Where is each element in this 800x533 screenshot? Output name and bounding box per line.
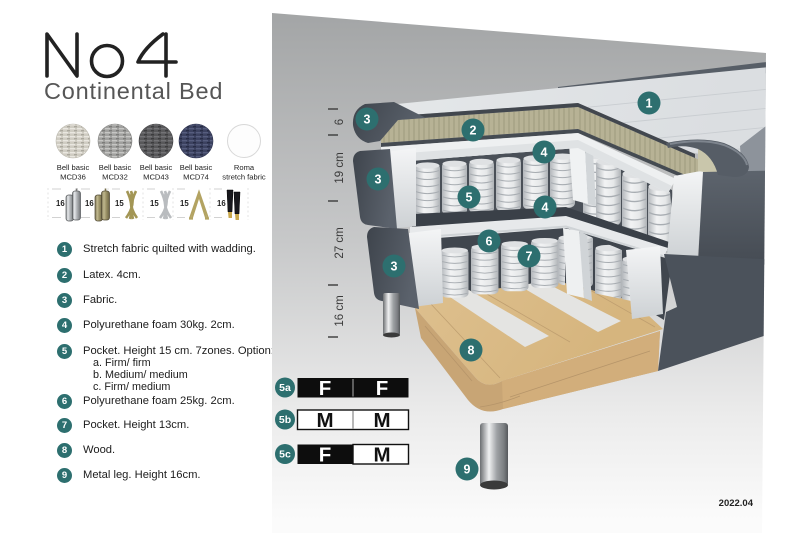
svg-text:15: 15	[115, 199, 124, 208]
svg-text:3: 3	[391, 260, 398, 274]
svg-text:27 cm: 27 cm	[334, 227, 346, 258]
svg-text:stretch fabric: stretch fabric	[222, 173, 266, 182]
svg-text:F: F	[319, 377, 332, 400]
svg-text:Bell basic: Bell basic	[57, 163, 90, 172]
svg-text:5c: 5c	[279, 449, 291, 461]
svg-text:5b: 5b	[279, 414, 291, 426]
svg-text:7: 7	[526, 250, 533, 264]
svg-text:F: F	[376, 377, 389, 400]
svg-text:5a: 5a	[279, 382, 291, 394]
svg-text:4: 4	[542, 201, 549, 215]
svg-text:Bell basic: Bell basic	[180, 163, 213, 172]
svg-text:16: 16	[85, 199, 94, 208]
svg-text:5: 5	[466, 191, 473, 205]
svg-text:Bell basic: Bell basic	[140, 163, 173, 172]
svg-text:Bell basic: Bell basic	[99, 163, 132, 172]
svg-text:M: M	[373, 444, 390, 467]
svg-text:MCD32: MCD32	[102, 173, 128, 182]
svg-text:Roma: Roma	[234, 163, 255, 172]
svg-text:15: 15	[180, 199, 189, 208]
svg-text:8: 8	[468, 344, 475, 358]
svg-text:6: 6	[486, 235, 493, 249]
svg-text:16: 16	[56, 199, 65, 208]
svg-text:4: 4	[541, 146, 548, 160]
svg-text:1: 1	[646, 97, 653, 111]
svg-text:15: 15	[150, 199, 159, 208]
svg-text:F: F	[319, 444, 332, 467]
svg-text:3: 3	[375, 173, 382, 187]
svg-text:6: 6	[334, 119, 346, 125]
svg-text:MCD36: MCD36	[60, 173, 86, 182]
svg-text:19 cm: 19 cm	[334, 152, 346, 183]
svg-text:3: 3	[364, 113, 371, 127]
svg-text:M: M	[373, 409, 390, 432]
svg-text:16: 16	[217, 199, 226, 208]
svg-text:16 cm: 16 cm	[334, 295, 346, 326]
svg-text:MCD74: MCD74	[183, 173, 209, 182]
svg-text:9: 9	[464, 463, 471, 477]
svg-text:M: M	[316, 409, 333, 432]
svg-text:2: 2	[470, 124, 477, 138]
svg-text:2022.04: 2022.04	[719, 498, 754, 509]
svg-text:MCD43: MCD43	[143, 173, 169, 182]
